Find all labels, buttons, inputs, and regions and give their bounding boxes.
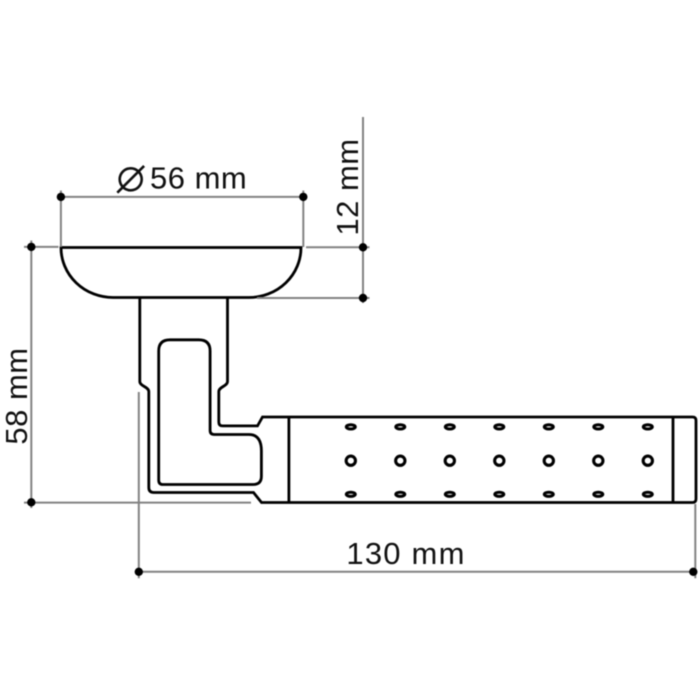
- svg-text:130 mm: 130 mm: [346, 536, 465, 571]
- svg-text:12 mm: 12 mm: [330, 138, 365, 235]
- svg-text:58 mm: 58 mm: [0, 347, 34, 444]
- svg-text:56 mm: 56 mm: [150, 161, 247, 196]
